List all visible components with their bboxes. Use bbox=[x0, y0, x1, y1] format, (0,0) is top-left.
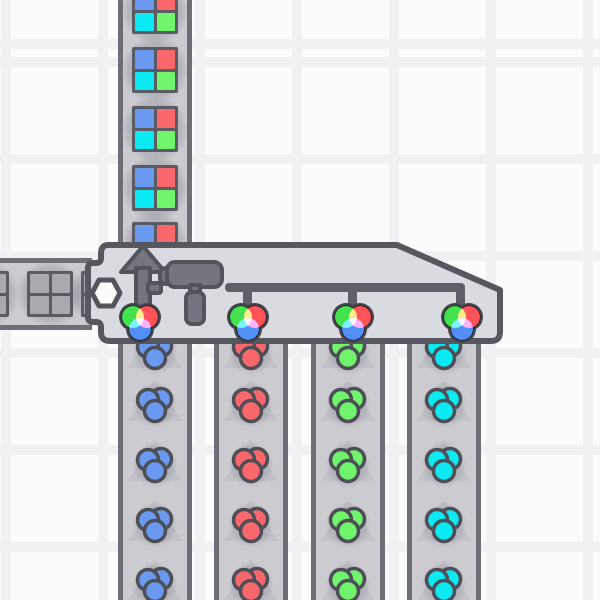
paint-blob-green bbox=[328, 446, 368, 489]
window-quadrant-red bbox=[157, 168, 176, 187]
color-wheel-icon bbox=[118, 300, 162, 344]
window-quadrant-blue bbox=[135, 0, 154, 10]
window-shape-item bbox=[132, 0, 178, 34]
window-shape-item bbox=[132, 165, 178, 211]
window-quadrant-uncolored bbox=[30, 274, 49, 293]
window-quadrant-uncolored bbox=[0, 274, 6, 293]
paint-blob-red bbox=[231, 506, 271, 549]
window-shape-item bbox=[132, 47, 178, 93]
paint-blob-red bbox=[231, 386, 271, 429]
belt-input-color-green[interactable] bbox=[311, 336, 385, 600]
color-wheel-icon bbox=[440, 300, 484, 344]
window-quadrant-blue bbox=[135, 109, 154, 128]
window-quadrant-uncolored bbox=[52, 296, 71, 315]
window-quadrant-blue bbox=[135, 168, 154, 187]
window-quadrant-green bbox=[157, 13, 176, 32]
window-quadrant-uncolored bbox=[0, 296, 6, 315]
window-shape-item bbox=[27, 271, 73, 317]
window-quadrant-green bbox=[157, 72, 176, 91]
belt-input-color-red[interactable] bbox=[214, 336, 288, 600]
window-quadrant-green bbox=[157, 190, 176, 209]
window-quadrant-red bbox=[157, 109, 176, 128]
paint-blob-cyan bbox=[424, 566, 464, 600]
window-quadrant-cyan bbox=[135, 13, 154, 32]
window-quadrant-uncolored bbox=[52, 274, 71, 293]
window-quadrant-cyan bbox=[135, 72, 154, 91]
belt-input-color-cyan[interactable] bbox=[407, 336, 481, 600]
belt-output-painted[interactable] bbox=[118, 0, 192, 250]
window-quadrant-blue bbox=[135, 50, 154, 69]
window-shape-item bbox=[0, 271, 9, 317]
paint-blob-blue bbox=[135, 506, 175, 549]
paint-blob-cyan bbox=[424, 386, 464, 429]
window-quadrant-green bbox=[157, 131, 176, 150]
paint-blob-blue bbox=[135, 566, 175, 600]
color-wheel-icon bbox=[331, 300, 375, 344]
paint-blob-green bbox=[328, 566, 368, 600]
game-viewport bbox=[0, 0, 600, 600]
window-shape-item bbox=[132, 106, 178, 152]
color-wheel-icon bbox=[226, 300, 270, 344]
paint-blob-red bbox=[231, 446, 271, 489]
window-quadrant-cyan bbox=[135, 131, 154, 150]
window-quadrant-red bbox=[157, 50, 176, 69]
paint-blob-cyan bbox=[424, 506, 464, 549]
window-quadrant-uncolored bbox=[30, 296, 49, 315]
belt-input-color-blue[interactable] bbox=[118, 336, 192, 600]
paint-blob-blue bbox=[135, 446, 175, 489]
paint-blob-green bbox=[328, 506, 368, 549]
paint-blob-blue bbox=[135, 386, 175, 429]
shape-input-hexagon bbox=[92, 280, 120, 306]
window-quadrant-cyan bbox=[135, 190, 154, 209]
window-quadrant-red bbox=[157, 0, 176, 10]
belt-input-shapes[interactable] bbox=[0, 258, 92, 330]
paint-blob-cyan bbox=[424, 446, 464, 489]
paint-blob-red bbox=[231, 566, 271, 600]
paint-blob-green bbox=[328, 386, 368, 429]
